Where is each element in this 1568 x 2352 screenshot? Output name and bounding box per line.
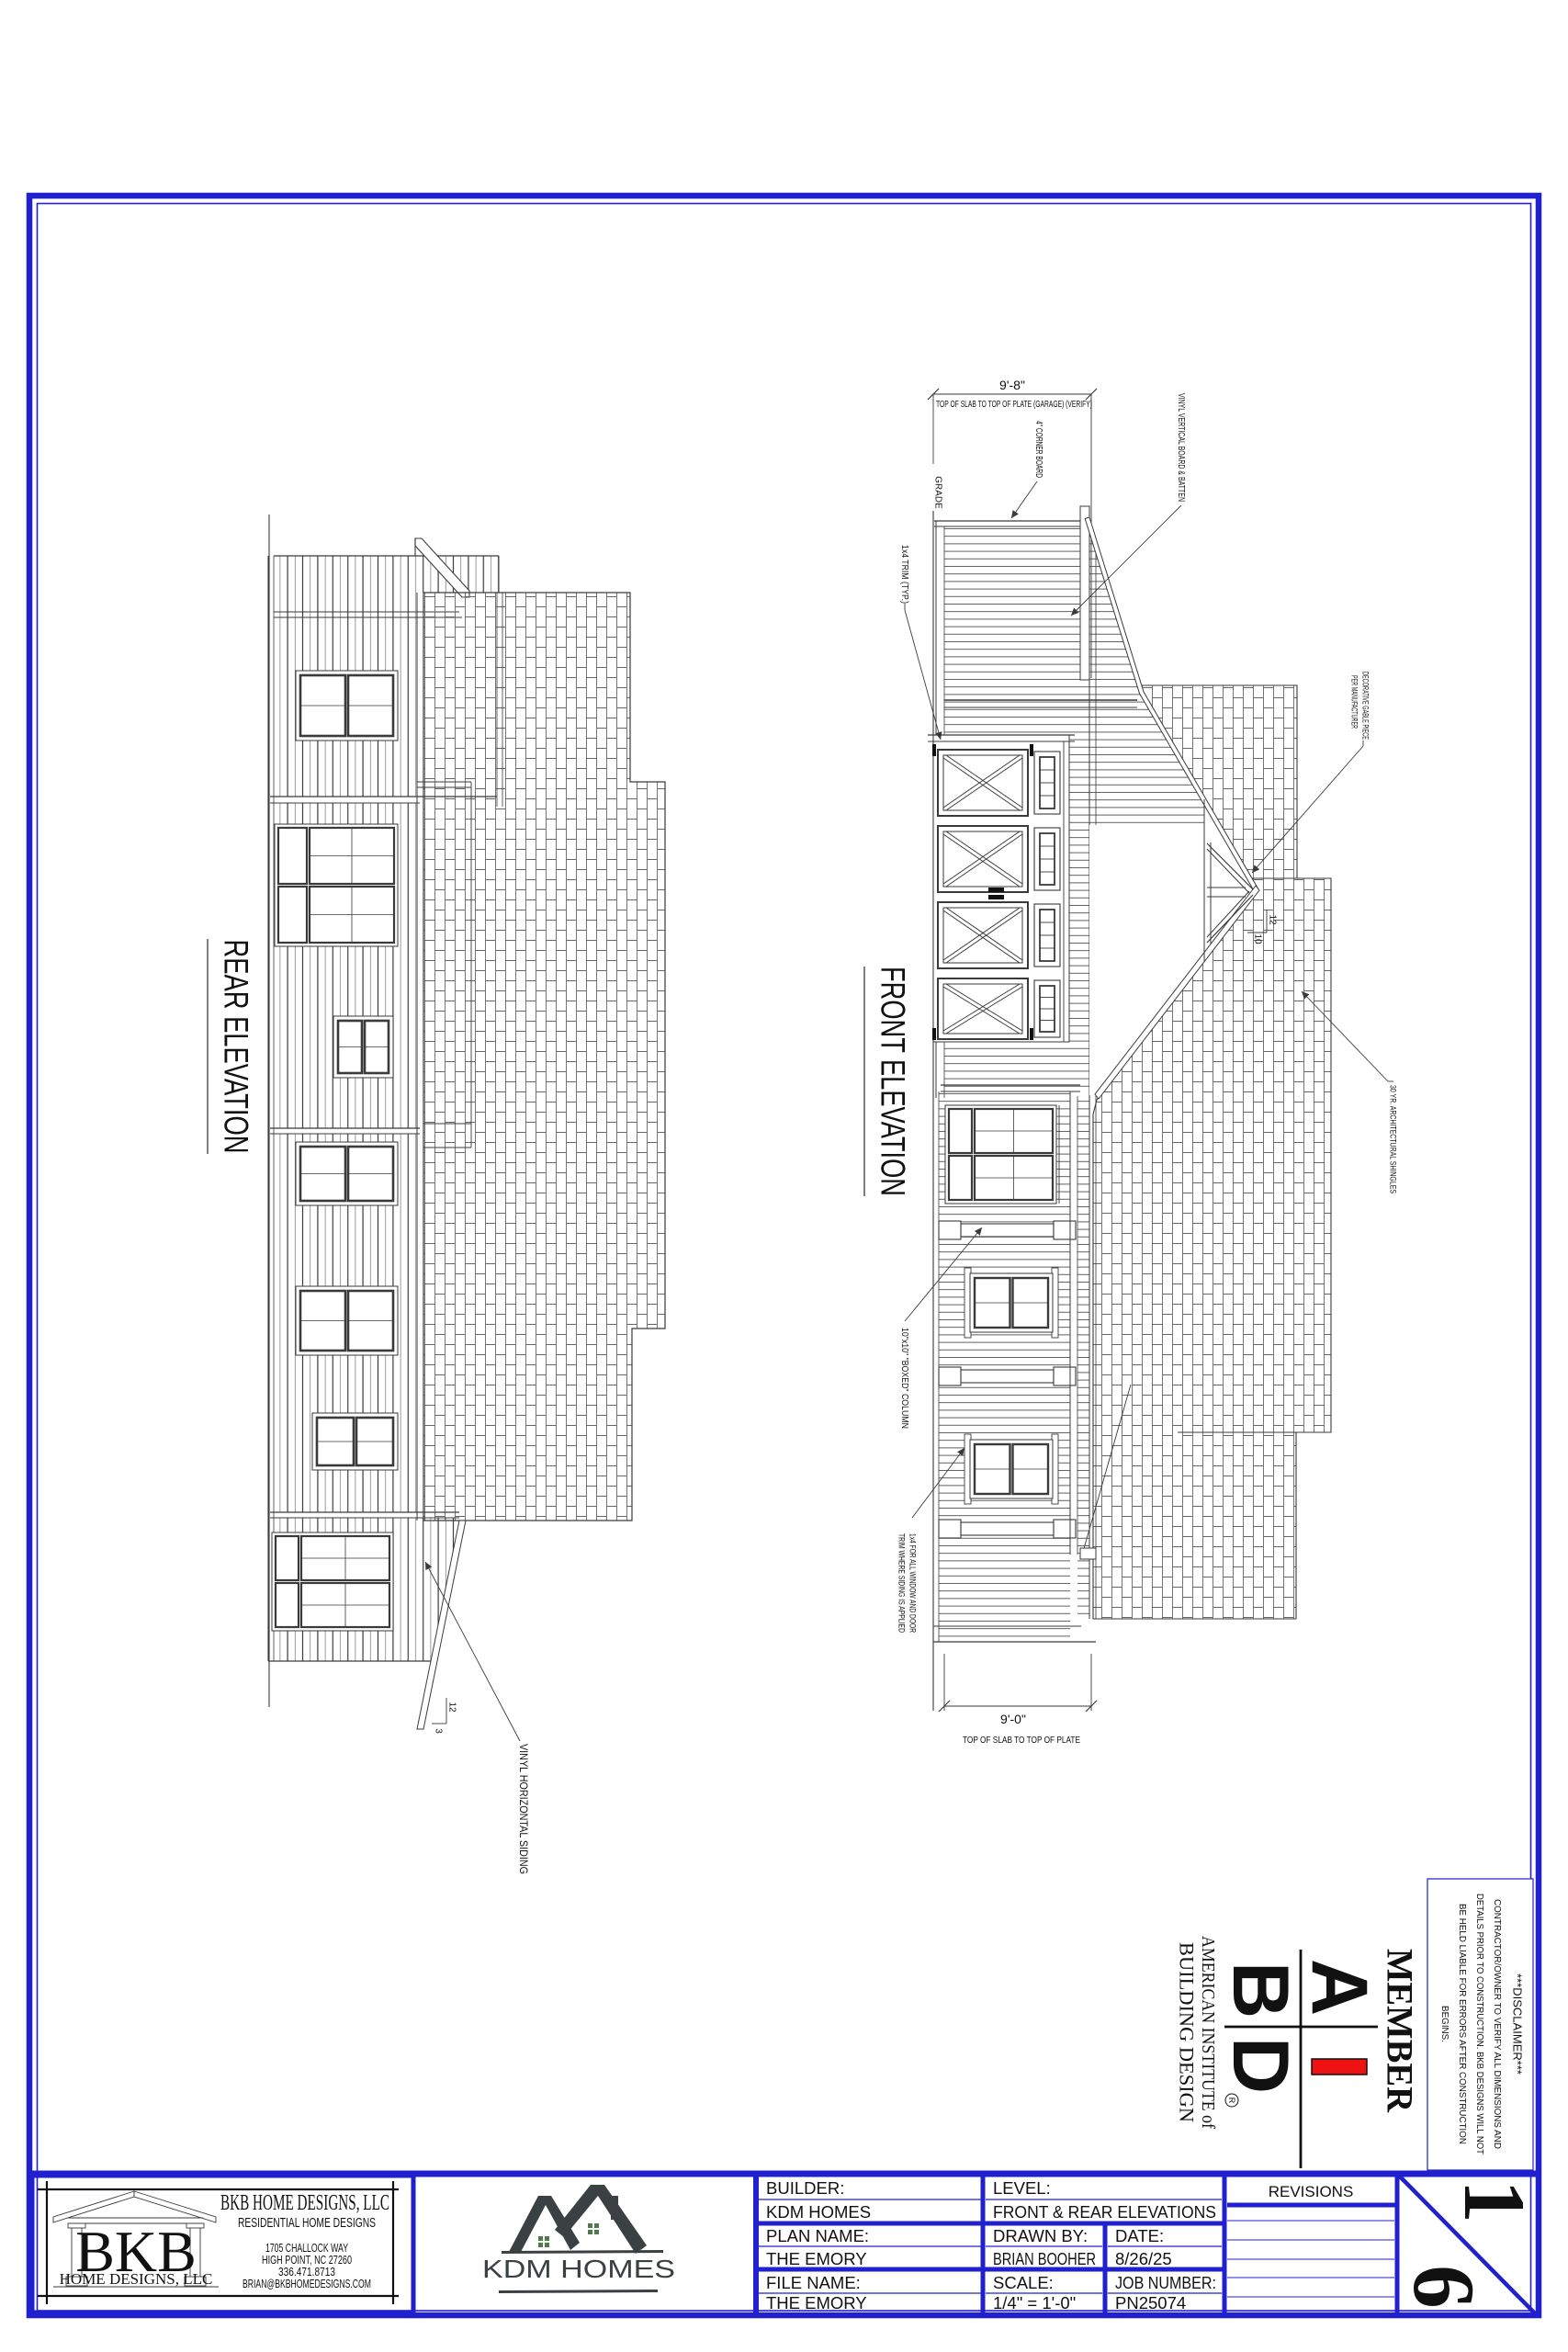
svg-text:1x4 TRIM (TYP.): 1x4 TRIM (TYP.)	[899, 545, 910, 604]
svg-text:TRIM WHERE SIDING IS APPLIED: TRIM WHERE SIDING IS APPLIED	[897, 1533, 907, 1633]
svg-text:BRIAN@BKBHOMEDESIGNS.COM: BRIAN@BKBHOMEDESIGNS.COM	[243, 2277, 371, 2290]
svg-text:AMERICAN INSTITUTE of: AMERICAN INSTITUTE of	[1198, 1936, 1218, 2129]
svg-text:GRADE: GRADE	[933, 476, 943, 509]
svg-text:PER MANUFACTURER: PER MANUFACTURER	[1349, 675, 1359, 729]
svg-text:LEVEL:: LEVEL:	[993, 2178, 1051, 2198]
svg-text:1/4" = 1'-0": 1/4" = 1'-0"	[993, 2293, 1076, 2312]
svg-text:THE EMORY: THE EMORY	[766, 2293, 867, 2312]
svg-text:BE HELD LIABLE FOR ERRORS AFTE: BE HELD LIABLE FOR ERRORS AFTER CONSTRUC…	[1457, 1904, 1468, 2144]
svg-text:1x4 FOR ALL WINDOW AND DOOR: 1x4 FOR ALL WINDOW AND DOOR	[908, 1533, 918, 1633]
svg-text:D: D	[1216, 2037, 1304, 2094]
svg-text:RESIDENTIAL HOME DESIGNS: RESIDENTIAL HOME DESIGNS	[238, 2215, 376, 2231]
svg-text:BUILDING DESIGN: BUILDING DESIGN	[1176, 1942, 1199, 2122]
svg-text:VINYL HORIZONTAL SIDING: VINYL HORIZONTAL SIDING	[517, 1744, 528, 1874]
svg-text:9'-8": 9'-8"	[999, 378, 1025, 392]
svg-text:BUILDER:: BUILDER:	[766, 2178, 844, 2198]
svg-text:PN25074: PN25074	[1115, 2293, 1186, 2312]
svg-text:THE EMORY: THE EMORY	[766, 2249, 867, 2268]
svg-text:DECORATIVE GABLE PIECE: DECORATIVE GABLE PIECE	[1360, 672, 1371, 740]
svg-text:30 YR. ARCHITECTURAL SHINGLES: 30 YR. ARCHITECTURAL SHINGLES	[1388, 1085, 1398, 1193]
svg-text:10"x10" "BOXED" COLUMN: 10"x10" "BOXED" COLUMN	[899, 1328, 910, 1429]
svg-text:1: 1	[1446, 2179, 1543, 2223]
svg-text:***DISCLAIMER***: ***DISCLAIMER***	[1511, 1973, 1525, 2075]
svg-text:12: 12	[447, 1702, 457, 1713]
svg-text:FRONT ELEVATION: FRONT ELEVATION	[874, 967, 912, 1196]
svg-text:TOP OF SLAB TO TOP OF PLATE: TOP OF SLAB TO TOP OF PLATE	[963, 1735, 1080, 1746]
svg-text:A: A	[1295, 1959, 1383, 2016]
svg-text:BEGINS.: BEGINS.	[1439, 2006, 1450, 2042]
svg-text:FILE NAME:: FILE NAME:	[766, 2273, 861, 2292]
svg-text:BRIAN BOOHER: BRIAN BOOHER	[993, 2249, 1096, 2268]
svg-text:DRAWN BY:: DRAWN BY:	[993, 2226, 1088, 2245]
svg-text:JOB NUMBER:: JOB NUMBER:	[1115, 2273, 1216, 2292]
svg-text:DETAILS PRIOR TO CONSTRUCTION.: DETAILS PRIOR TO CONSTRUCTION. BKB DESIG…	[1474, 1894, 1485, 2155]
svg-text:B: B	[1216, 1962, 1304, 2018]
svg-text:SCALE:: SCALE:	[993, 2273, 1054, 2292]
svg-text:HOME DESIGNS, LLC: HOME DESIGNS, LLC	[60, 2270, 213, 2288]
svg-text:BKB HOME DESIGNS, LLC: BKB HOME DESIGNS, LLC	[220, 2191, 389, 2215]
svg-text:FRONT & REAR ELEVATIONS: FRONT & REAR ELEVATIONS	[993, 2202, 1216, 2222]
svg-text:MEMBER: MEMBER	[1380, 1949, 1421, 2113]
svg-text:4" CORNER BOARD: 4" CORNER BOARD	[1033, 421, 1044, 478]
svg-text:12: 12	[1268, 914, 1278, 925]
svg-text:REAR ELEVATION: REAR ELEVATION	[218, 940, 255, 1154]
svg-text:3: 3	[434, 1728, 444, 1734]
svg-text:R: R	[1227, 2098, 1236, 2104]
svg-text:REVISIONS: REVISIONS	[1269, 2183, 1354, 2200]
svg-text:CONTRACTOR/OWNER TO VERIFY ALL: CONTRACTOR/OWNER TO VERIFY ALL DIMENSION…	[1492, 1899, 1503, 2149]
svg-text:9'-0": 9'-0"	[1000, 1712, 1026, 1726]
svg-text:PLAN NAME:: PLAN NAME:	[766, 2226, 869, 2245]
svg-text:KDM HOMES: KDM HOMES	[766, 2202, 871, 2222]
svg-text:KDM HOMES: KDM HOMES	[482, 2255, 675, 2283]
svg-text:VINYL VERTICAL BOARD & BATTEN: VINYL VERTICAL BOARD & BATTEN	[1176, 393, 1187, 502]
svg-text:6: 6	[1395, 2265, 1493, 2309]
svg-text:TOP OF SLAB TO TOP OF PLATE (G: TOP OF SLAB TO TOP OF PLATE (GARAGE) (VE…	[936, 399, 1092, 410]
svg-text:DATE:: DATE:	[1115, 2226, 1164, 2245]
svg-text:8/26/25: 8/26/25	[1115, 2249, 1172, 2268]
svg-text:10: 10	[1253, 933, 1263, 944]
